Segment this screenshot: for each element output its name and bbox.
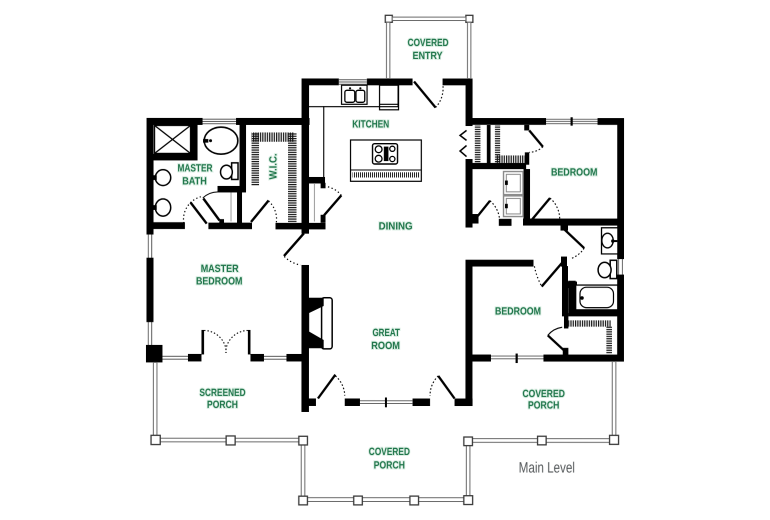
svg-text:W.I.C.: W.I.C. [267,153,279,179]
svg-text:GREAT: GREAT [372,327,400,339]
svg-text:BEDROOM: BEDROOM [495,306,541,318]
svg-text:ROOM: ROOM [371,340,400,352]
svg-text:SCREENED: SCREENED [199,387,246,399]
svg-text:COVERED: COVERED [408,37,449,49]
svg-text:ENTRY: ENTRY [413,50,443,62]
svg-text:DINING: DINING [379,221,413,233]
svg-text:Main Level: Main Level [519,459,575,476]
svg-text:PORCH: PORCH [207,399,238,411]
svg-text:PORCH: PORCH [528,400,560,412]
svg-text:COVERED: COVERED [522,388,565,400]
svg-text:BEDROOM: BEDROOM [551,167,598,179]
svg-text:MASTER: MASTER [178,162,213,174]
svg-text:MASTER: MASTER [201,263,239,275]
svg-text:KITCHEN: KITCHEN [352,119,389,131]
svg-text:BATH: BATH [182,176,207,188]
svg-text:COVERED: COVERED [369,446,411,458]
svg-text:PORCH: PORCH [374,460,405,472]
svg-text:BEDROOM: BEDROOM [196,276,243,288]
